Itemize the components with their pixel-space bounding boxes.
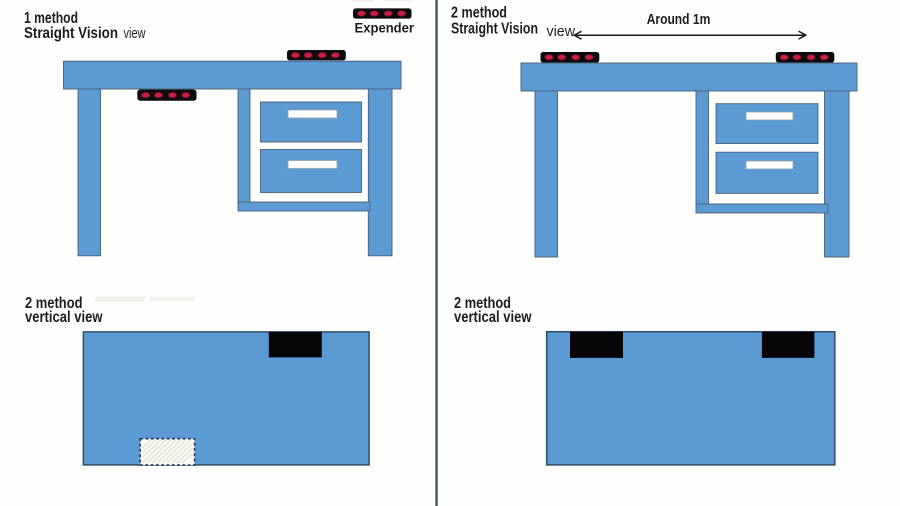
svg-text:Straight Vision: Straight Vision (451, 20, 538, 37)
svg-text:2 method: 2 method (451, 5, 507, 22)
svg-text:vertical view: vertical view (25, 309, 103, 326)
svg-text:view: view (547, 23, 576, 40)
svg-text:view: view (124, 25, 146, 42)
svg-text:Straight Vision: Straight Vision (24, 25, 118, 42)
svg-text:Around 1m: Around 1m (647, 11, 711, 28)
svg-text:Expender: Expender (355, 21, 415, 36)
svg-text:vertical view: vertical view (454, 309, 532, 326)
